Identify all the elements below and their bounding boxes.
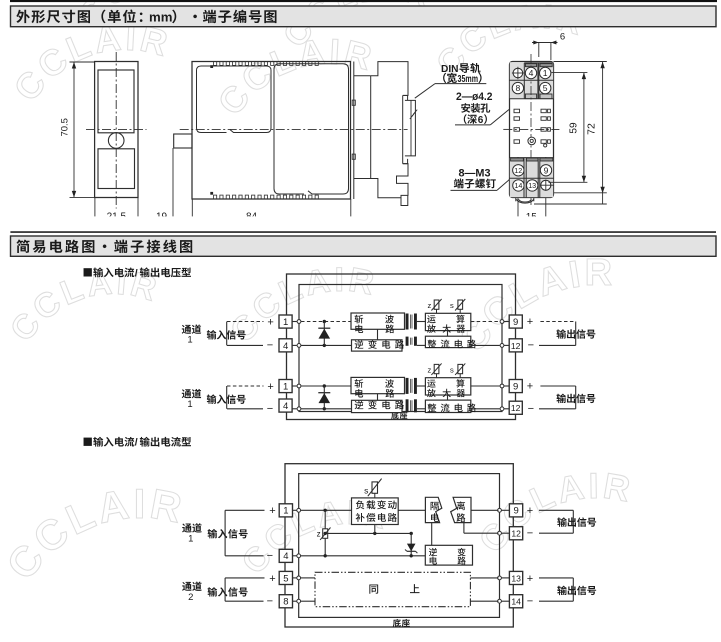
svg-text:+: + (269, 573, 275, 585)
svg-text:4: 4 (529, 68, 534, 78)
svg-text:9: 9 (513, 317, 518, 328)
svg-text:1: 1 (188, 534, 193, 545)
svg-text:12: 12 (511, 341, 521, 351)
svg-text:5: 5 (543, 83, 548, 93)
svg-text:72: 72 (586, 123, 598, 135)
svg-text:−: − (528, 340, 534, 352)
svg-text:1: 1 (283, 506, 288, 517)
svg-text:s: s (364, 486, 368, 496)
svg-text:8—M3: 8—M3 (459, 168, 491, 180)
svg-text:15: 15 (526, 212, 538, 223)
svg-text:13: 13 (528, 181, 536, 190)
svg-text:12: 12 (514, 166, 522, 175)
svg-text:13: 13 (511, 573, 521, 583)
svg-text:CCLAIR: CCLAIR (3, 263, 164, 348)
svg-text:DIN: DIN (441, 63, 459, 75)
svg-text:mm: mm (149, 9, 172, 24)
svg-text:4: 4 (283, 341, 288, 352)
svg-text:2: 2 (188, 592, 193, 603)
svg-text:12: 12 (511, 529, 521, 539)
svg-text:z: z (317, 529, 321, 538)
svg-text:19: 19 (156, 212, 168, 223)
svg-text:14: 14 (514, 181, 522, 190)
svg-text:5: 5 (283, 573, 288, 584)
svg-text:+: + (267, 381, 273, 393)
svg-text:1: 1 (187, 335, 192, 346)
svg-text:1: 1 (543, 68, 548, 78)
svg-text:1: 1 (283, 381, 288, 392)
svg-text:+: + (267, 316, 273, 328)
svg-text:14: 14 (511, 597, 521, 607)
svg-text:70.5: 70.5 (60, 118, 71, 137)
svg-text:+: + (269, 505, 275, 517)
svg-text:9: 9 (513, 381, 518, 392)
svg-text:9: 9 (513, 506, 518, 517)
svg-text:12: 12 (511, 403, 521, 413)
svg-text:+: + (527, 573, 533, 585)
svg-text:−: − (527, 528, 533, 540)
svg-text:+: + (527, 505, 533, 517)
svg-text:−: − (267, 340, 273, 352)
svg-text:4: 4 (283, 551, 288, 562)
svg-text:−: − (527, 596, 533, 608)
svg-text:−: − (267, 403, 273, 415)
svg-text:s: s (450, 301, 454, 310)
svg-text:84: 84 (246, 212, 258, 223)
svg-text:+: + (527, 381, 533, 393)
svg-text:z: z (428, 365, 432, 374)
svg-text:/: / (135, 268, 138, 279)
svg-text:4: 4 (283, 401, 288, 412)
svg-text:8: 8 (283, 597, 288, 608)
svg-text:CCLAIR: CCLAIR (470, 465, 636, 560)
svg-text:1: 1 (187, 399, 192, 410)
svg-text:CCLAIR: CCLAIR (0, 480, 188, 588)
svg-text:−: − (267, 550, 273, 562)
svg-text:21.5: 21.5 (107, 212, 127, 223)
svg-text:+: + (527, 316, 533, 328)
svg-text:59: 59 (569, 122, 580, 134)
svg-text:8: 8 (516, 83, 521, 93)
svg-text:/: / (135, 438, 138, 449)
svg-text:6: 6 (478, 115, 484, 126)
svg-text:s: s (450, 365, 454, 374)
svg-text:2—ø4.2: 2—ø4.2 (456, 91, 493, 103)
svg-text:−: − (267, 596, 273, 608)
svg-text:−: − (528, 403, 534, 415)
svg-text:z: z (428, 301, 432, 310)
svg-text:1: 1 (283, 317, 288, 328)
svg-text:9: 9 (544, 165, 549, 175)
svg-text:6: 6 (560, 32, 565, 43)
